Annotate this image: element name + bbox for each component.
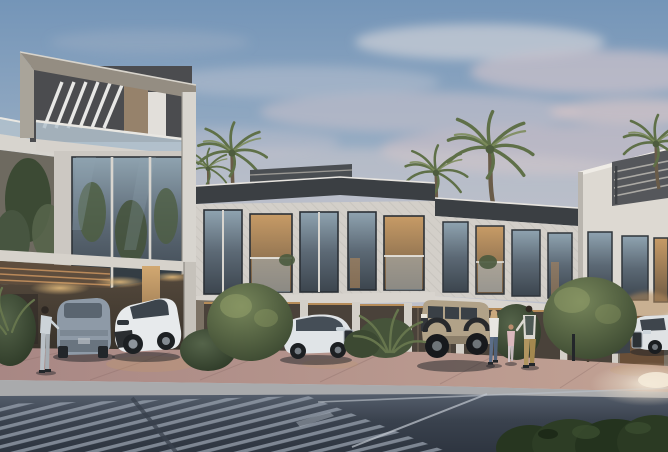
render-canvas [0,0,668,452]
windows-block-a [204,210,424,294]
bollard [572,334,575,361]
tower-white-panel [148,92,166,136]
grey-suv-rear [53,298,115,362]
townhouse-block-a [196,164,435,306]
tower-wood-panel [124,86,148,134]
shrub-round-centre [207,283,293,361]
